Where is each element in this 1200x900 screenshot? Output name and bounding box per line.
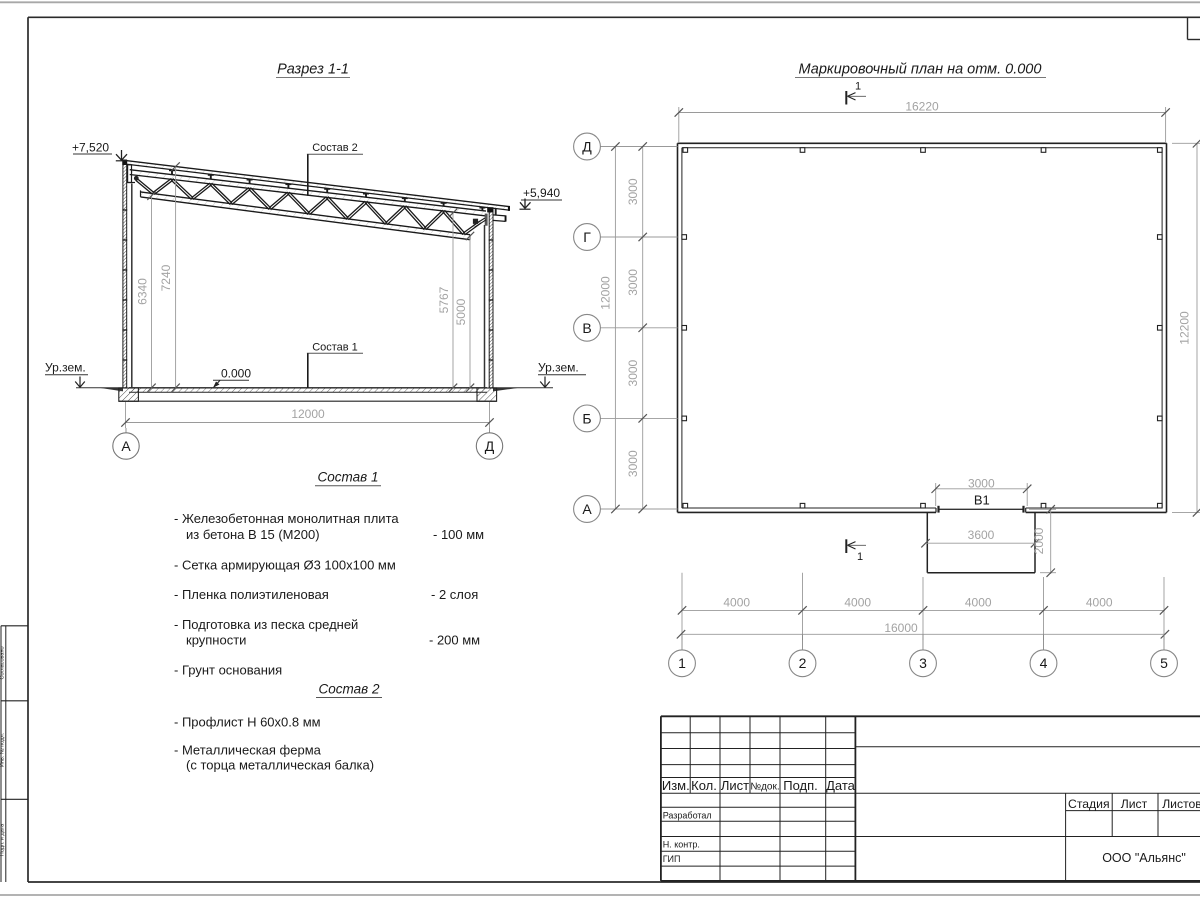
svg-text:Состав 1: Состав 1 — [312, 341, 358, 353]
svg-text:- Металлическая ферма: - Металлическая ферма — [174, 743, 322, 758]
svg-text:12200: 12200 — [1177, 311, 1191, 345]
svg-text:0.000: 0.000 — [221, 367, 251, 381]
svg-text:Состав 1: Состав 1 — [318, 470, 379, 485]
svg-text:2: 2 — [799, 655, 807, 671]
svg-text:5000: 5000 — [454, 298, 468, 325]
svg-text:- 100 мм: - 100 мм — [433, 527, 484, 542]
svg-text:+5,940: +5,940 — [523, 186, 560, 200]
svg-text:2000: 2000 — [1032, 527, 1046, 554]
svg-text:Лист: Лист — [1121, 797, 1148, 811]
svg-text:3000: 3000 — [968, 476, 995, 490]
svg-text:4: 4 — [1040, 655, 1048, 671]
svg-text:Состав 2: Состав 2 — [319, 682, 380, 697]
svg-text:Инв. № подл.: Инв. № подл. — [0, 732, 6, 767]
svg-text:3000: 3000 — [626, 359, 640, 386]
svg-text:1: 1 — [857, 551, 863, 563]
svg-text:ООО "Альянс": ООО "Альянс" — [1102, 851, 1186, 865]
svg-text:3000: 3000 — [626, 450, 640, 477]
svg-text:4000: 4000 — [965, 596, 992, 610]
svg-text:- Грунт основания: - Грунт основания — [174, 663, 282, 678]
svg-text:Подп.: Подп. — [783, 778, 818, 793]
svg-text:4000: 4000 — [844, 596, 871, 610]
svg-text:из бетона В 15 (М200): из бетона В 15 (М200) — [186, 527, 320, 542]
svg-text:В: В — [582, 320, 591, 336]
svg-text:Ур.зем.: Ур.зем. — [538, 361, 579, 375]
svg-text:- 2 слоя: - 2 слоя — [431, 587, 478, 602]
svg-text:Маркировочный план на отм. 0.0: Маркировочный план на отм. 0.000 — [799, 62, 1042, 78]
svg-text:Разработал: Разработал — [663, 811, 712, 821]
svg-text:Б: Б — [582, 410, 591, 426]
svg-text:Ур.зем.: Ур.зем. — [45, 361, 86, 375]
svg-text:Д: Д — [582, 139, 592, 155]
svg-text:16000: 16000 — [884, 621, 918, 635]
svg-text:ГИП: ГИП — [663, 854, 681, 864]
svg-text:Состав 2: Состав 2 — [312, 142, 358, 154]
svg-text:А: А — [121, 438, 131, 454]
svg-text:3000: 3000 — [626, 269, 640, 296]
svg-text:+7,520: +7,520 — [72, 141, 109, 155]
svg-text:5767: 5767 — [437, 286, 451, 313]
svg-text:- 200 мм: - 200 мм — [429, 633, 480, 648]
svg-text:(с торца металлическая балка): (с торца металлическая балка) — [186, 758, 374, 773]
svg-text:1: 1 — [678, 655, 686, 671]
svg-text:Изм.: Изм. — [662, 778, 690, 793]
svg-text:А: А — [582, 501, 592, 517]
svg-text:Кол.: Кол. — [691, 778, 717, 793]
svg-text:- Подготовка из песка средней: - Подготовка из песка средней — [174, 617, 358, 632]
svg-text:Разрез 1-1: Разрез 1-1 — [277, 62, 349, 78]
svg-text:№док.: №док. — [750, 781, 779, 792]
svg-text:12000: 12000 — [599, 276, 613, 310]
svg-text:3600: 3600 — [968, 528, 995, 542]
svg-text:Г: Г — [583, 229, 591, 245]
svg-text:Д: Д — [485, 438, 495, 454]
svg-text:7240: 7240 — [159, 264, 173, 291]
svg-text:Подп. и дата: Подп. и дата — [0, 823, 6, 856]
svg-text:Лист: Лист — [721, 778, 749, 793]
svg-text:Листов: Листов — [1162, 797, 1200, 811]
svg-text:- Железобетонная монолитная п: - Железобетонная монолитная плита — [174, 511, 399, 526]
svg-text:5: 5 — [1160, 655, 1168, 671]
svg-text:4000: 4000 — [1086, 596, 1113, 610]
svg-text:6340: 6340 — [136, 278, 150, 305]
svg-text:- Профлист Н 60х0.8 мм: - Профлист Н 60х0.8 мм — [174, 715, 321, 730]
svg-text:12000: 12000 — [291, 407, 325, 421]
svg-text:крупности: крупности — [186, 633, 246, 648]
svg-text:Согласовано: Согласовано — [0, 646, 6, 679]
svg-text:Дата: Дата — [826, 778, 856, 793]
svg-text:3: 3 — [919, 655, 927, 671]
svg-text:Н. контр.: Н. контр. — [663, 840, 700, 850]
svg-text:1: 1 — [855, 81, 861, 93]
svg-text:- Пленка полиэтиленовая: - Пленка полиэтиленовая — [174, 587, 329, 602]
svg-text:В1: В1 — [974, 493, 990, 508]
svg-text:4000: 4000 — [723, 596, 750, 610]
svg-text:- Сетка армирующая Ø3 100x100: - Сетка армирующая Ø3 100x100 мм — [174, 558, 396, 573]
svg-text:3000: 3000 — [626, 178, 640, 205]
svg-text:Стадия: Стадия — [1068, 797, 1110, 811]
svg-text:16220: 16220 — [905, 99, 939, 113]
